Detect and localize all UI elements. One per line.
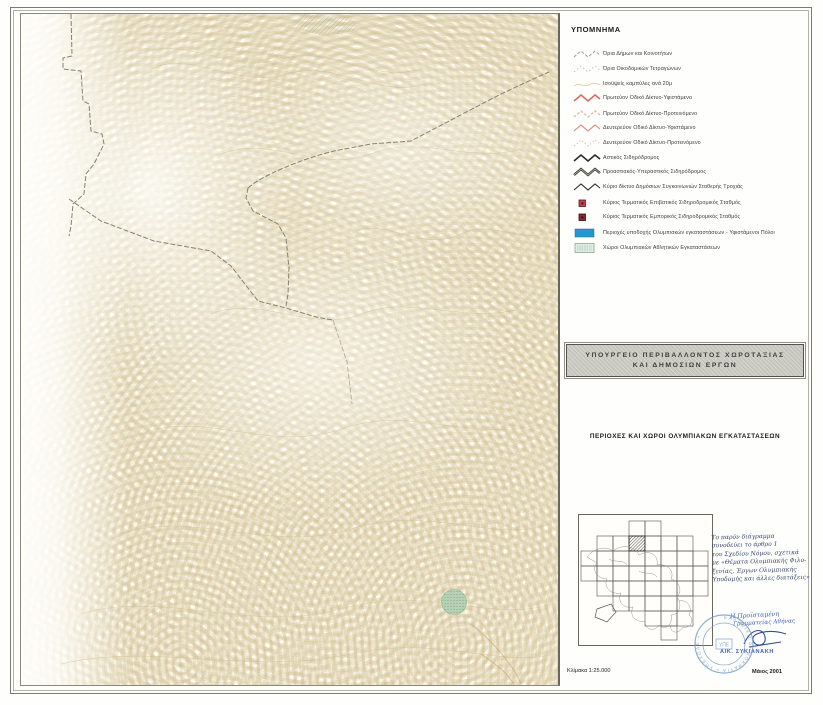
legend-item-label: Πρωτεύον Οδικό Δίκτυο-Υφιστάμενο (603, 95, 692, 101)
road-primary-proposed-icon (573, 108, 603, 120)
legend-item: Κύριος Τερματικός Εμπορικός Σιδηροδρομικ… (573, 210, 801, 223)
scanned-map-sheet: ΥΠΟΜΝΗΜΑ Όρια Δήμων και ΚοινοτήτωνΌρια Ο… (0, 0, 823, 705)
legend-item: Κύριο δίκτυο Δημόσιων Συγκοινωνιών Σταθε… (573, 180, 801, 193)
contour-icon (573, 78, 603, 90)
legend-item: Προαστιακός-Υπεραστικός Σιδηρόδρομος (573, 165, 801, 178)
legend-item-label: Περιοχές υποδοχής Ολυμπιακών εγκαταστάσε… (603, 230, 775, 236)
legend-item-label: Κύριος Τερματικός Επιβατικός Σιδηροδρομι… (603, 200, 741, 206)
station-freight-icon (573, 211, 603, 223)
boundary-blocks-icon (573, 63, 603, 75)
legend-item-label: Χώροι Ολυμπιακών Αθλητικών Εγκαταστάσεων (603, 245, 720, 251)
legend-item: Περιοχές υποδοχής Ολυμπιακών εγκαταστάσε… (573, 226, 801, 239)
olympic-site-marker (442, 590, 467, 615)
ministry-title-block: ΥΠΟΥΡΓΕΙΟ ΠΕΡΙΒΑΛΛΟΝΤΟΣ ΧΩΡΟΤΑΞΙΑΣ ΚΑΙ Δ… (566, 344, 804, 377)
ministry-name-line2: ΚΑΙ ΔΗΜΟΣΙΩΝ ΕΡΓΩΝ (567, 361, 803, 371)
legend-item-label: Κύριο δίκτυο Δημόσιων Συγκοινωνιών Σταθε… (603, 184, 743, 190)
legend-item: Χώροι Ολυμπιακών Αθλητικών Εγκαταστάσεων (573, 241, 801, 254)
legend-title: ΥΠΟΜΝΗΜΑ (571, 25, 621, 34)
legend-item: Πρωτεύον Οδικό Δίκτυο-Προτεινόμενο (573, 107, 801, 120)
map-linework (21, 14, 558, 685)
island-outline (595, 604, 616, 622)
legend-item-label: Δευτερεύον Οδικό Δίκτυο-Προτεινόμενο (603, 140, 701, 146)
area-reception-icon (573, 227, 603, 239)
legend-item: Όρια Δήμων και Κοινοτήτων (573, 47, 801, 60)
scale-label: Κλίμακα 1:25.000 (567, 668, 611, 674)
road-secondary-existing-icon (573, 122, 603, 134)
topographic-map (20, 13, 560, 686)
date-label: Μάιος 2001 (752, 669, 782, 675)
legend-item: Ισοϋψείς καμπύλες ανά 20μ (573, 77, 801, 90)
legend-item-label: Προαστιακός-Υπεραστικός Σιδηρόδρομος (603, 169, 706, 175)
handwritten-note-line: Υποδομής και άλλες διατάξεις» (712, 574, 816, 585)
boundary-municipal-icon (573, 48, 603, 60)
attica-outline (587, 547, 692, 632)
road-primary-existing-icon (573, 92, 603, 104)
legend-item-label: Αστικός Σιδηρόδρομος (603, 155, 659, 161)
rail-suburban-icon (573, 166, 603, 178)
rail-urban-icon (573, 152, 603, 164)
stamp-center-text: ΥΠΕ (719, 643, 730, 649)
legend-item-label: Πρωτεύον Οδικό Δίκτυο-Προτεινόμενο (603, 111, 697, 117)
legend-item-label: Κύριος Τερματικός Εμπορικός Σιδηροδρομικ… (603, 214, 740, 220)
ministry-name-line1: ΥΠΟΥΡΓΕΙΟ ΠΕΡΙΒΑΛΛΟΝΤΟΣ ΧΩΡΟΤΑΞΙΑΣ (567, 351, 803, 361)
hatched-area-patch (293, 14, 359, 36)
rail-fixed-track-icon (573, 181, 603, 193)
legend-panel: ΥΠΟΜΝΗΜΑ Όρια Δήμων και ΚοινοτήτωνΌρια Ο… (563, 13, 807, 689)
legend-item: Δευτερεύον Οδικό Δίκτυο-Υφιστάμενο (573, 121, 801, 134)
area-olympic-sites-icon (573, 242, 603, 254)
map-title: ΠΕΡΙΟΧΕΣ ΚΑΙ ΧΩΡΟΙ ΟΛΥΜΠΙΑΚΩΝ ΕΓΚΑΤΑΣΤΑΣ… (566, 433, 804, 440)
legend-item: Πρωτεύον Οδικό Δίκτυο-Υφιστάμενο (573, 91, 801, 104)
legend-item: Όρια Οικοδομικών Τετραγώνων (573, 62, 801, 75)
contour-lines (61, 48, 554, 664)
official-stamp: ΕΛΛΗΝΙΚΗ ΔΗΜΟΚΡΑΤΙΑ • ΥΠΕΧΩΔΕ • ΥΠΕ (691, 611, 757, 677)
legend-item: Αστικός Σιδηρόδρομος (573, 151, 801, 164)
legend-item-label: Ισοϋψείς καμπύλες ανά 20μ (603, 81, 672, 87)
road-secondary-proposed-icon (573, 137, 603, 149)
station-passenger-icon (573, 197, 603, 209)
legend-item-label: Όρια Οικοδομικών Τετραγώνων (603, 66, 681, 72)
legend-item-label: Δευτερεύον Οδικό Δίκτυο-Υφιστάμενο (603, 125, 696, 131)
legend-item-label: Όρια Δήμων και Κοινοτήτων (603, 51, 672, 57)
municipal-boundary-lines (63, 14, 549, 404)
current-sheet-highlight (629, 536, 645, 551)
legend-item: Δευτερεύον Οδικό Δίκτυο-Προτεινόμενο (573, 136, 801, 149)
legend-item: Κύριος Τερματικός Επιβατικός Σιδηροδρομι… (573, 196, 801, 209)
handwritten-note: Το παρόν διάγραμμασυνοδεύει το άρθρο 1το… (711, 532, 816, 585)
